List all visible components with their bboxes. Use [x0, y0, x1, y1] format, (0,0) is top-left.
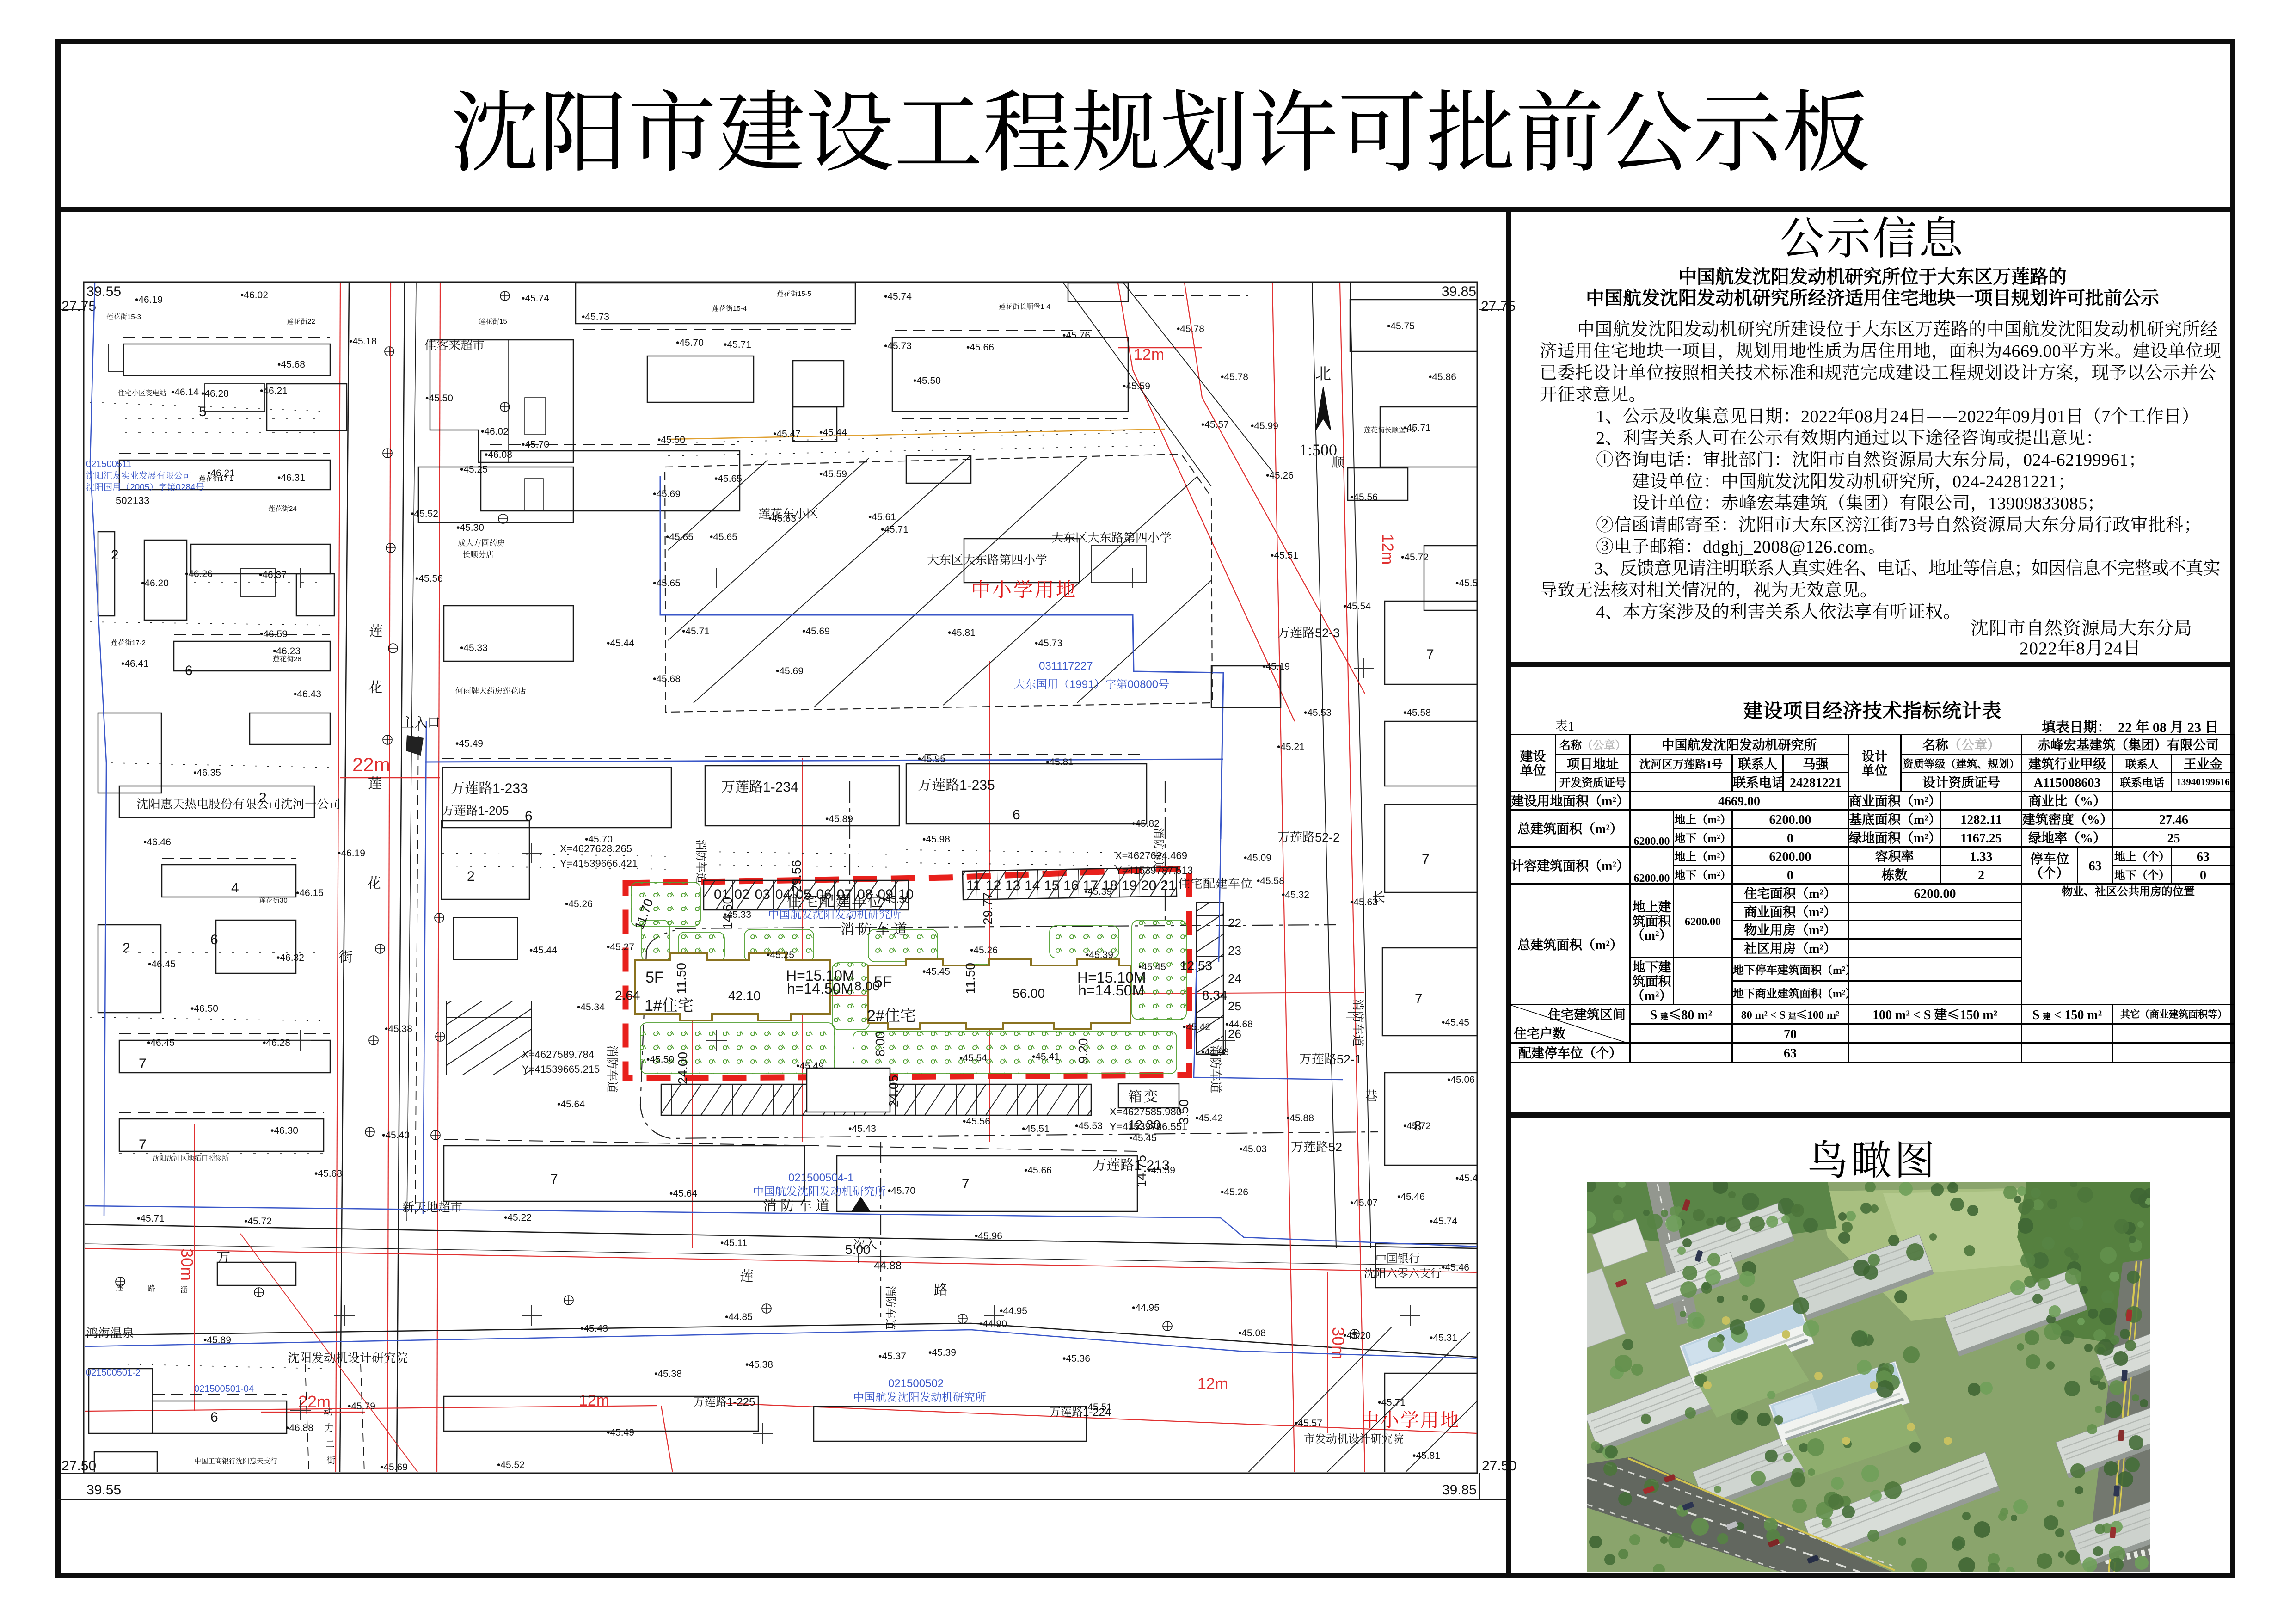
svg-text:•45.88: •45.88 — [1286, 1111, 1314, 1124]
svg-text:莲: 莲 — [368, 772, 382, 793]
svg-text:•45.68: •45.68 — [653, 671, 681, 685]
svg-text:万莲路1-234: 万莲路1-234 — [721, 775, 798, 796]
svg-text:大东区大东路第四小学: 大东区大东路第四小学 — [927, 551, 1047, 568]
svg-text:•44.90: •44.90 — [979, 1316, 1007, 1330]
svg-text:莲花街15-5: 莲花街15-5 — [777, 289, 811, 298]
svg-text:•45.68: •45.68 — [277, 357, 305, 371]
svg-text:消防车道: 消防车道 — [884, 1285, 900, 1330]
svg-text:•45.21: •45.21 — [1277, 739, 1305, 753]
svg-text:•45.45: •45.45 — [922, 964, 950, 978]
svg-text:•45.38: •45.38 — [745, 1357, 773, 1371]
svg-text:•45.65: •45.65 — [653, 576, 681, 590]
svg-text:•45.70: •45.70 — [888, 1183, 915, 1197]
svg-text:鸿海温泉: 鸿海温泉 — [86, 1324, 134, 1341]
svg-text:021500511: 021500511 — [86, 456, 132, 470]
svg-text:沈阳沈河区地拓口腔诊所: 沈阳沈河区地拓口腔诊所 — [153, 1153, 229, 1163]
svg-text:•45.52: •45.52 — [411, 506, 438, 520]
svg-text:•45.71: •45.71 — [724, 337, 751, 351]
svg-text:30m: 30m — [176, 1248, 200, 1281]
svg-text:•45.43: •45.43 — [848, 1121, 876, 1135]
svg-text:万: 万 — [62, 1243, 72, 1257]
svg-text:•45.69: •45.69 — [776, 664, 804, 677]
svg-text:•46.08: •46.08 — [485, 447, 512, 461]
svg-text:11: 11 — [966, 874, 981, 894]
svg-text:•45.86: •45.86 — [1429, 369, 1456, 383]
svg-text:•45.65: •45.65 — [714, 471, 742, 485]
svg-text:•45.03: •45.03 — [1239, 1142, 1267, 1155]
svg-text:•44.85: •44.85 — [725, 1309, 753, 1323]
svg-text:•45.46: •45.46 — [1397, 1189, 1425, 1203]
svg-text:8.00: 8.00 — [870, 1032, 889, 1057]
svg-text:14: 14 — [1025, 874, 1040, 894]
svg-text:•46.02: •46.02 — [481, 424, 509, 438]
svg-text:•46.35: •46.35 — [193, 765, 221, 779]
svg-text:中国航发沈阳发动机研究所: 中国航发沈阳发动机研究所 — [753, 1182, 886, 1198]
svg-text:24.00: 24.00 — [673, 1052, 691, 1084]
svg-text:沈阳国用（2005）字第0284号: 沈阳国用（2005）字第0284号 — [86, 480, 204, 493]
svg-text:•46.45: •46.45 — [148, 957, 176, 971]
svg-text:市发动机设计研究院: 市发动机设计研究院 — [1304, 1430, 1404, 1446]
svg-text:•45.64: •45.64 — [669, 1186, 697, 1200]
svg-text:•45.51: •45.51 — [1271, 548, 1298, 562]
svg-text:北: 北 — [1315, 361, 1331, 384]
svg-text:•45.74: •45.74 — [522, 291, 549, 305]
svg-text:•45.73: •45.73 — [884, 338, 912, 352]
svg-text:佳客来超市: 佳客来超市 — [424, 336, 485, 353]
svg-text:•45.45: •45.45 — [1129, 1130, 1157, 1144]
svg-text:2: 2 — [467, 865, 475, 885]
svg-text:56.00: 56.00 — [1013, 983, 1045, 1002]
svg-text:Y=41539666.421: Y=41539666.421 — [560, 856, 638, 870]
svg-text:•46.19: •46.19 — [135, 292, 163, 306]
svg-text:X=4627589.784: X=4627589.784 — [522, 1047, 594, 1061]
svg-text:何雨牌大药房莲花店: 何雨牌大药房莲花店 — [455, 684, 526, 696]
svg-text:7: 7 — [550, 1167, 558, 1188]
svg-text:•45.39: •45.39 — [928, 1345, 956, 1359]
svg-text:•45.39: •45.39 — [1084, 884, 1112, 898]
svg-text:•45.71: •45.71 — [682, 624, 710, 638]
svg-text:涵: 涵 — [180, 1284, 188, 1295]
svg-text:•45.30: •45.30 — [882, 892, 910, 906]
svg-text:沈阳六零六支行: 沈阳六零六支行 — [1364, 1264, 1442, 1280]
svg-text:路: 路 — [148, 1283, 155, 1293]
svg-text:•45.54: •45.54 — [1455, 576, 1483, 590]
svg-text:万莲路1-225: 万莲路1-225 — [694, 1393, 755, 1409]
svg-text:•45.65: •45.65 — [710, 529, 737, 543]
svg-text:6: 6 — [210, 928, 218, 948]
svg-text:•45.75: •45.75 — [1387, 319, 1415, 332]
svg-text:二: 二 — [325, 1437, 335, 1450]
svg-text:1#住宅: 1#住宅 — [645, 993, 694, 1015]
svg-text:•45.57: •45.57 — [1201, 417, 1229, 431]
svg-text:29.77: 29.77 — [978, 892, 996, 925]
svg-text:街: 街 — [339, 946, 353, 966]
svg-text:•45.41: •45.41 — [1032, 1049, 1060, 1063]
svg-text:•45.78: •45.78 — [1221, 369, 1248, 383]
svg-text:中国银行: 中国银行 — [1375, 1249, 1420, 1266]
svg-text:03: 03 — [755, 883, 770, 903]
svg-text:住宅小区变电站: 住宅小区变电站 — [118, 388, 166, 398]
svg-text:•45.25: •45.25 — [460, 462, 488, 476]
svg-text:•45.81: •45.81 — [1412, 1448, 1440, 1462]
svg-text:•45.70: •45.70 — [522, 437, 549, 451]
svg-text:2: 2 — [123, 936, 130, 957]
svg-text:27.75: 27.75 — [61, 295, 96, 315]
svg-text:•45.50: •45.50 — [657, 432, 685, 446]
svg-text:•45.81: •45.81 — [1046, 755, 1074, 768]
svg-text:•46.88: •46.88 — [286, 1420, 313, 1434]
svg-text:•45.57: •45.57 — [1295, 1416, 1322, 1430]
svg-text:花: 花 — [368, 676, 382, 696]
svg-text:•45.50: •45.50 — [425, 391, 453, 405]
svg-text:•45.40: •45.40 — [382, 1128, 410, 1142]
svg-text:•46.43: •46.43 — [294, 687, 321, 700]
svg-text:•45.08: •45.08 — [1238, 1326, 1266, 1339]
svg-text:•45.32: •45.32 — [1282, 887, 1309, 901]
svg-text:•45.46: •45.46 — [1442, 1260, 1469, 1274]
svg-text:•45.71: •45.71 — [137, 1211, 165, 1225]
svg-text:•45.22: •45.22 — [504, 1210, 532, 1224]
svg-text:•45.53: •45.53 — [1075, 1118, 1103, 1132]
svg-text:•45.51: •45.51 — [1084, 1400, 1112, 1413]
svg-text:•45.73: •45.73 — [1035, 636, 1062, 650]
svg-text:莲花街15-3: 莲花街15-3 — [106, 312, 141, 321]
svg-text:7: 7 — [139, 1133, 147, 1153]
svg-text:•45.06: •45.06 — [1447, 1072, 1475, 1086]
svg-text:沈阳发动机设计研究院: 沈阳发动机设计研究院 — [288, 1349, 408, 1366]
svg-text:•45.71: •45.71 — [1378, 1395, 1406, 1409]
svg-text:•45.26: •45.26 — [1221, 1185, 1248, 1198]
svg-text:•45.26: •45.26 — [565, 897, 593, 910]
svg-text:502133: 502133 — [116, 493, 149, 507]
svg-text:5: 5 — [199, 400, 207, 420]
svg-text:•46.31: •46.31 — [277, 470, 305, 484]
svg-text:•45.74: •45.74 — [1430, 1214, 1457, 1228]
svg-text:•45.99: •45.99 — [1251, 418, 1278, 432]
svg-text:•45.31: •45.31 — [1430, 1330, 1457, 1344]
svg-text:大东区大东路第四小学: 大东区大东路第四小学 — [1051, 528, 1172, 546]
svg-text:万莲路52: 万莲路52 — [1291, 1137, 1342, 1155]
svg-text:X=4627585.980: X=4627585.980 — [1110, 1104, 1182, 1118]
svg-text:•45.58: •45.58 — [1257, 873, 1284, 887]
svg-text:7: 7 — [139, 1052, 147, 1072]
svg-text:•46.19: •46.19 — [338, 846, 365, 860]
svg-text:25: 25 — [1228, 997, 1241, 1014]
svg-text:•46.21: •46.21 — [260, 383, 288, 397]
svg-text:•45.54: •45.54 — [1343, 599, 1371, 613]
svg-text:•45.72: •45.72 — [1403, 1118, 1431, 1132]
svg-text:•46.50: •46.50 — [190, 1001, 218, 1015]
svg-text:24.05: 24.05 — [884, 1075, 902, 1107]
svg-text:•46.21: •46.21 — [207, 466, 235, 479]
svg-text:•45.59: •45.59 — [819, 467, 847, 480]
svg-text:•45.69: •45.69 — [380, 1460, 408, 1474]
svg-text:h=14.50M: h=14.50M — [787, 977, 853, 998]
svg-text:大东国用（1991）字第00800号: 大东国用（1991）字第00800号 — [1014, 675, 1169, 691]
svg-text:万莲路1-205: 万莲路1-205 — [442, 801, 509, 818]
svg-text:•44.68: •44.68 — [1225, 1017, 1253, 1031]
svg-text:莲花街17-2: 莲花街17-2 — [111, 638, 146, 647]
svg-text:9.20: 9.20 — [1073, 1038, 1092, 1064]
svg-text:6: 6 — [1013, 803, 1020, 823]
svg-text:消防车道: 消防车道 — [1350, 999, 1367, 1047]
svg-text:•45.52: •45.52 — [497, 1457, 525, 1471]
svg-text:•46.28: •46.28 — [201, 386, 229, 400]
svg-text:•44.95: •44.95 — [1132, 1300, 1160, 1314]
svg-text:•45.25: •45.25 — [767, 947, 794, 961]
svg-text:•45.26: •45.26 — [970, 943, 998, 957]
svg-text:中小学用地: 中小学用地 — [971, 575, 1077, 602]
svg-text:•45.09: •45.09 — [1244, 850, 1271, 864]
svg-text:12m: 12m — [1197, 1371, 1228, 1394]
svg-text:•45.53: •45.53 — [1304, 705, 1332, 719]
svg-text:•46.23: •46.23 — [273, 644, 301, 657]
svg-text:动: 动 — [324, 1404, 333, 1418]
svg-text:27.75: 27.75 — [1481, 295, 1516, 315]
svg-text:2: 2 — [259, 786, 267, 806]
svg-text:箱变: 箱变 — [1128, 1085, 1160, 1106]
svg-text:8.00: 8.00 — [854, 976, 880, 995]
svg-text:•45.63: •45.63 — [1350, 895, 1378, 909]
svg-text:万莲路52-3: 万莲路52-3 — [1277, 623, 1340, 641]
svg-text:万莲路52-2: 万莲路52-2 — [1277, 827, 1340, 845]
svg-text:•45.70: •45.70 — [676, 335, 704, 349]
svg-text:27.50: 27.50 — [1482, 1454, 1516, 1475]
svg-text:•45.89: •45.89 — [825, 811, 853, 825]
svg-text:主入口: 主入口 — [401, 713, 440, 731]
svg-text:031117227: 031117227 — [1039, 657, 1093, 673]
svg-text:39.85: 39.85 — [1442, 280, 1476, 300]
svg-text:•45.76: •45.76 — [1062, 328, 1090, 342]
svg-text:•45.39: •45.39 — [1086, 947, 1113, 961]
svg-text:22: 22 — [1228, 914, 1241, 931]
svg-text:12m: 12m — [1378, 534, 1400, 565]
svg-text:•45.49: •45.49 — [607, 1425, 634, 1439]
svg-text:42.10: 42.10 — [728, 986, 761, 1004]
svg-text:消防车道: 消防车道 — [694, 839, 710, 884]
svg-text:•45.66: •45.66 — [1024, 1163, 1052, 1177]
svg-text:16: 16 — [1063, 874, 1079, 894]
svg-text:•45.51: •45.51 — [1022, 1121, 1050, 1135]
svg-text:•45.42: •45.42 — [1183, 1020, 1210, 1033]
svg-text:6: 6 — [210, 1406, 218, 1426]
svg-text:•45.18: •45.18 — [349, 334, 377, 348]
svg-text:12m: 12m — [579, 1388, 609, 1410]
svg-text:39.55: 39.55 — [86, 1478, 121, 1499]
svg-text:•45.68: •45.68 — [314, 1166, 342, 1180]
svg-text:•45.47: •45.47 — [773, 426, 801, 440]
svg-text:莲花街15: 莲花街15 — [479, 316, 507, 326]
svg-text:•45.56: •45.56 — [415, 571, 443, 585]
svg-text:24: 24 — [1228, 969, 1241, 986]
svg-text:7: 7 — [962, 1172, 970, 1192]
svg-text:•45.26: •45.26 — [1266, 468, 1294, 482]
svg-text:莲: 莲 — [116, 1282, 123, 1292]
svg-text:长顺分店: 长顺分店 — [462, 548, 494, 559]
svg-text:莲花街30: 莲花街30 — [259, 895, 288, 905]
svg-text:•45.49: •45.49 — [796, 1058, 824, 1072]
svg-text:•45.96: •45.96 — [975, 1229, 1002, 1242]
svg-text:13: 13 — [1005, 874, 1020, 894]
svg-text:h=14.50M: h=14.50M — [1078, 979, 1144, 1000]
svg-text:•46.41: •46.41 — [121, 656, 149, 670]
svg-text:•46.26: •46.26 — [185, 566, 213, 580]
svg-text:•44.98: •44.98 — [1201, 1044, 1229, 1058]
svg-text:•46.02: •46.02 — [240, 288, 268, 301]
svg-text:•45.72: •45.72 — [244, 1214, 272, 1228]
svg-text:•45.98: •45.98 — [922, 832, 950, 846]
svg-text:1:500: 1:500 — [1299, 441, 1337, 459]
svg-text:•45.07: •45.07 — [1350, 1195, 1378, 1209]
svg-text:•45.19: •45.19 — [1262, 659, 1290, 673]
svg-text:沈阳惠天热电股份有限公司沈河一公司: 沈阳惠天热电股份有限公司沈河一公司 — [136, 795, 341, 812]
svg-text:•45.50: •45.50 — [913, 373, 941, 387]
svg-text:•45.64: •45.64 — [557, 1097, 585, 1111]
svg-text:中国航发沈阳发动机研究所: 中国航发沈阳发动机研究所 — [853, 1388, 986, 1404]
svg-text:12m: 12m — [1134, 342, 1164, 364]
svg-text:•46.28: •46.28 — [263, 1035, 290, 1049]
svg-text:•45.71: •45.71 — [1403, 420, 1431, 434]
svg-text:•45.74: •45.74 — [884, 289, 912, 303]
svg-text:莲花街15-4: 莲花街15-4 — [712, 303, 747, 313]
svg-text:成大方圆药房: 成大方圆药房 — [458, 536, 505, 548]
svg-text:万: 万 — [216, 1246, 230, 1266]
svg-text:6: 6 — [525, 805, 533, 825]
svg-text:•45.71: •45.71 — [881, 522, 909, 536]
svg-text:•45.63: •45.63 — [768, 511, 796, 525]
svg-text:•45.33: •45.33 — [460, 640, 488, 654]
svg-text:中国工商银行沈阳惠天支行: 中国工商银行沈阳惠天支行 — [194, 1456, 277, 1466]
svg-text:2: 2 — [111, 543, 119, 564]
svg-text:新天地超市: 新天地超市 — [402, 1198, 462, 1215]
svg-text:•45.38: •45.38 — [385, 1021, 412, 1035]
svg-text:•45.45: •45.45 — [1442, 1015, 1469, 1029]
svg-text:•45.34: •45.34 — [577, 1000, 605, 1014]
svg-text:7: 7 — [1426, 643, 1434, 663]
svg-text:•45.44: •45.44 — [529, 943, 557, 957]
svg-text:6: 6 — [185, 659, 193, 679]
svg-text:•45.38: •45.38 — [654, 1366, 682, 1380]
svg-text:•46.14: •46.14 — [171, 385, 199, 399]
svg-text:•45.70: •45.70 — [585, 832, 613, 846]
svg-text:•46.30: •46.30 — [270, 1123, 298, 1137]
svg-text:•46.20: •46.20 — [141, 576, 169, 590]
svg-text:•45.43: •45.43 — [580, 1321, 608, 1335]
svg-text:•45.59: •45.59 — [1148, 1163, 1175, 1177]
svg-text:力: 力 — [325, 1420, 334, 1434]
svg-text:莲: 莲 — [369, 620, 383, 640]
svg-text:•45.50: •45.50 — [646, 1052, 674, 1066]
svg-text:万莲路1-233: 万莲路1-233 — [451, 777, 528, 797]
svg-text:路: 路 — [934, 1278, 948, 1299]
svg-text:•45.61: •45.61 — [868, 510, 896, 523]
svg-text:•45.81: •45.81 — [948, 625, 976, 639]
svg-text:中小学用地: 中小学用地 — [1361, 1406, 1460, 1432]
svg-text:街: 街 — [326, 1453, 336, 1466]
svg-text:15: 15 — [1044, 874, 1059, 894]
svg-text:•45.78: •45.78 — [1177, 321, 1204, 335]
svg-text:5F: 5F — [645, 965, 664, 987]
svg-text:•45.42: •45.42 — [1195, 1111, 1223, 1124]
svg-text:•45.36: •45.36 — [1062, 1351, 1090, 1365]
svg-text:Y=41539787.513: Y=41539787.513 — [1115, 863, 1193, 877]
svg-text:X=4627624.469: X=4627624.469 — [1115, 848, 1187, 862]
svg-text:万莲路1-235: 万莲路1-235 — [918, 774, 995, 794]
svg-text:4: 4 — [231, 876, 239, 897]
svg-text:44.88: 44.88 — [874, 1256, 902, 1272]
svg-text:39.85: 39.85 — [1442, 1478, 1477, 1499]
svg-text:莲: 莲 — [740, 1265, 754, 1285]
svg-text:021500501-2: 021500501-2 — [86, 1365, 141, 1378]
svg-text:•45.65: •45.65 — [666, 529, 694, 543]
svg-text:消防车道: 消防车道 — [604, 1045, 621, 1093]
svg-text:•46.59: •46.59 — [260, 627, 288, 640]
svg-text:•46.37: •46.37 — [259, 567, 287, 581]
svg-text:•45.27: •45.27 — [607, 940, 634, 953]
svg-text:巷: 巷 — [1365, 1086, 1378, 1105]
svg-text:沈阳汇友实业发展有限公司: 沈阳汇友实业发展有限公司 — [86, 469, 191, 481]
svg-text:•45.82: •45.82 — [1132, 816, 1160, 830]
svg-text:•45.56: •45.56 — [1350, 490, 1378, 504]
svg-text:•45.54: •45.54 — [959, 1051, 987, 1064]
svg-text:•45.37: •45.37 — [878, 1349, 906, 1363]
svg-text:口: 口 — [856, 1249, 868, 1266]
svg-text:•46.15: •46.15 — [296, 885, 324, 899]
svg-text:•45.69: •45.69 — [653, 486, 681, 500]
svg-text:万莲路52-1: 万莲路52-1 — [1299, 1049, 1362, 1067]
svg-text:7: 7 — [1415, 987, 1423, 1008]
svg-text:02: 02 — [734, 883, 749, 903]
svg-text:Y=41539665.215: Y=41539665.215 — [522, 1062, 600, 1076]
svg-text:•46.87: •46.87 — [288, 1487, 315, 1500]
svg-text:2#住宅: 2#住宅 — [867, 1003, 916, 1026]
svg-text:2.64: 2.64 — [615, 985, 640, 1004]
svg-text:29.56: 29.56 — [786, 860, 805, 892]
svg-text:8.34: 8.34 — [1202, 985, 1228, 1004]
svg-text:•45.44: •45.44 — [607, 636, 634, 650]
svg-text:12: 12 — [986, 874, 1001, 894]
svg-text:•45.66: •45.66 — [966, 340, 994, 354]
svg-text:27.50: 27.50 — [61, 1454, 96, 1475]
svg-text:11.50: 11.50 — [671, 963, 690, 994]
svg-text:•46.46: •46.46 — [143, 835, 171, 848]
svg-text:•45.44: •45.44 — [819, 425, 847, 439]
svg-text:•45.79: •45.79 — [348, 1399, 375, 1413]
svg-text:•45.49: •45.49 — [455, 736, 483, 750]
svg-text:•45.72: •45.72 — [1401, 550, 1429, 564]
svg-text:021500501-04: 021500501-04 — [194, 1381, 254, 1395]
svg-text:花: 花 — [367, 872, 381, 892]
svg-text:•45.73: •45.73 — [582, 309, 609, 323]
svg-text:•45.45: •45.45 — [1455, 1171, 1483, 1185]
svg-text:•45.33: •45.33 — [724, 907, 751, 921]
svg-text:莲花街22: 莲花街22 — [287, 316, 315, 326]
svg-text:•45.69: •45.69 — [802, 624, 830, 638]
svg-text:•45.30: •45.30 — [456, 520, 484, 534]
svg-text:•45.59: •45.59 — [1123, 379, 1150, 393]
svg-text:•46.45: •46.45 — [147, 1035, 175, 1049]
svg-text:23: 23 — [1228, 941, 1241, 958]
svg-text:•45.95: •45.95 — [918, 751, 945, 765]
svg-text:莲花街长顺堡1-4: 莲花街长顺堡1-4 — [999, 301, 1050, 311]
svg-text:7: 7 — [1422, 848, 1430, 868]
svg-text:中国航发沈阳发动机研究所: 中国航发沈阳发动机研究所 — [768, 905, 901, 922]
svg-text:•45.45: •45.45 — [1138, 959, 1166, 973]
svg-text:11.50: 11.50 — [960, 963, 979, 994]
svg-text:•45.89: •45.89 — [203, 1333, 231, 1346]
svg-text:•45.58: •45.58 — [1403, 705, 1431, 719]
svg-text:莲花街24: 莲花街24 — [268, 504, 297, 513]
